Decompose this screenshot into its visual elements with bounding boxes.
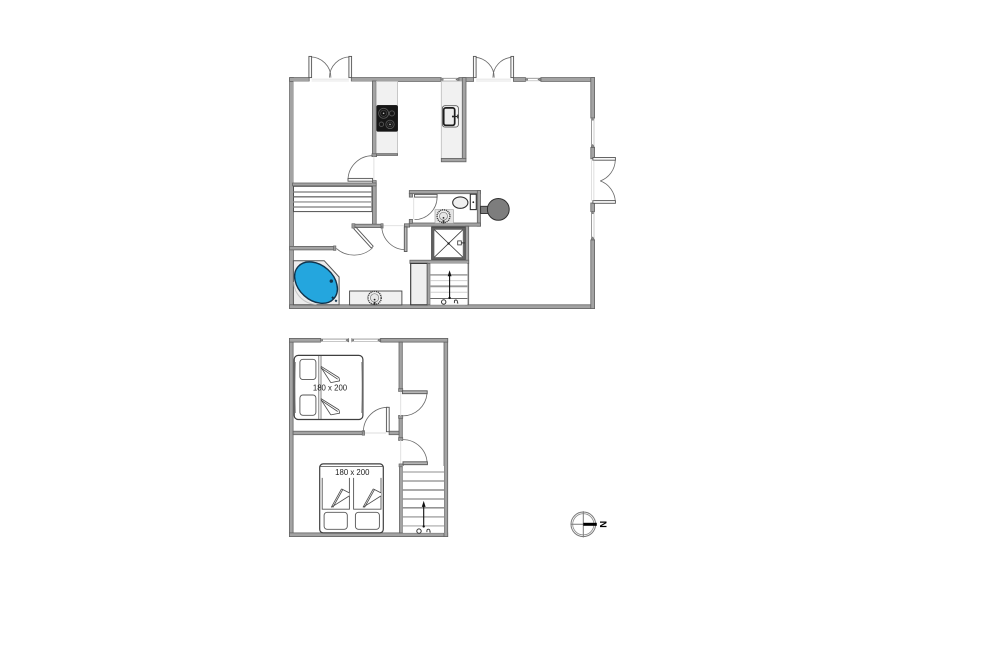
svg-text:N: N <box>597 521 608 528</box>
svg-text:180 x 200: 180 x 200 <box>313 383 348 392</box>
svg-text:180 x 200: 180 x 200 <box>335 468 370 477</box>
